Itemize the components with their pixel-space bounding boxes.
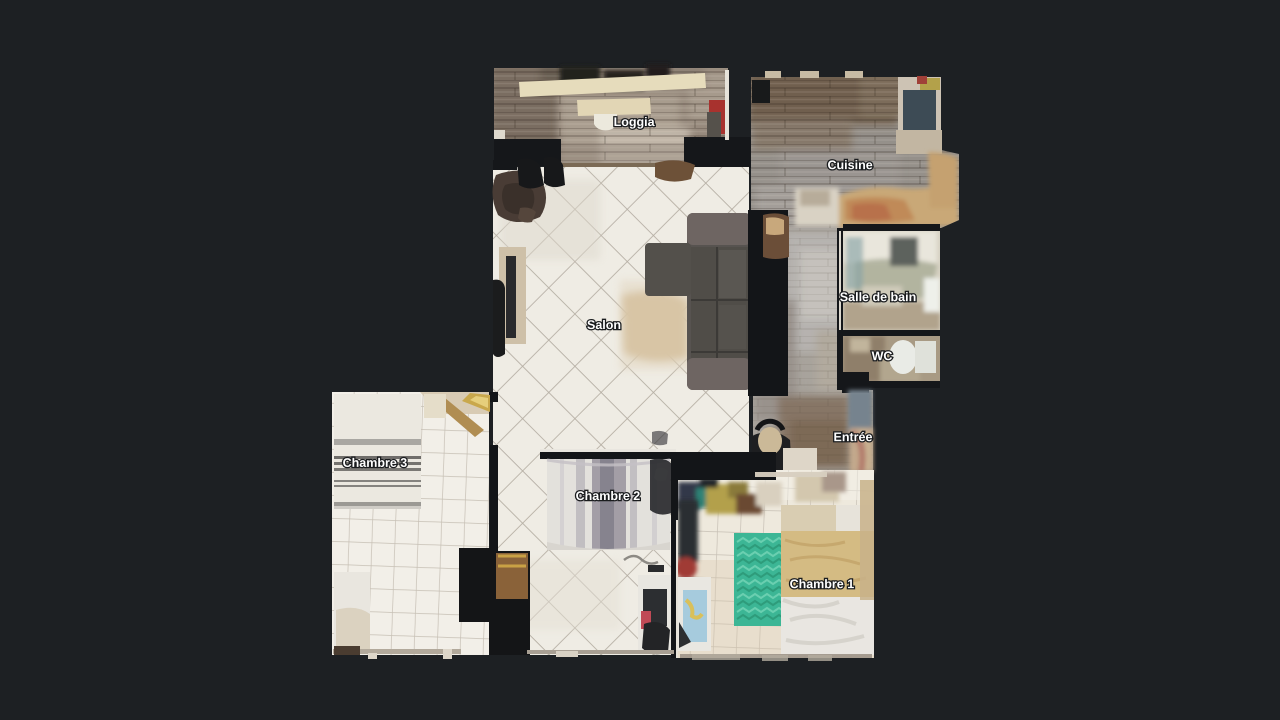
- svg-text:Loggia: Loggia: [614, 115, 656, 129]
- svg-text:Salon: Salon: [587, 318, 621, 332]
- svg-text:Chambre 3: Chambre 3: [343, 456, 408, 470]
- svg-text:Chambre 2: Chambre 2: [576, 489, 641, 503]
- svg-text:Cuisine: Cuisine: [828, 158, 873, 172]
- svg-text:Salle de bain: Salle de bain: [840, 290, 916, 304]
- svg-text:Chambre 1: Chambre 1: [790, 577, 855, 591]
- svg-text:WC: WC: [872, 349, 893, 363]
- svg-text:Entrée: Entrée: [834, 430, 873, 444]
